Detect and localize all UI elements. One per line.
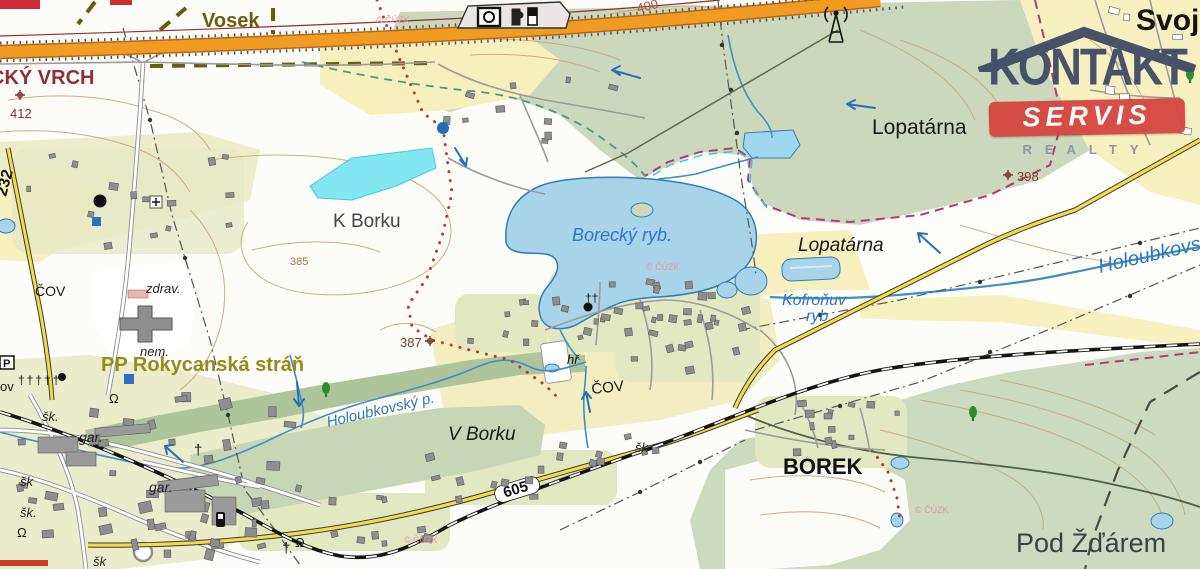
pond-left-edge <box>0 219 15 233</box>
building-footprint <box>331 531 339 538</box>
building-footprint <box>261 500 269 509</box>
borek-pond-2 <box>891 513 903 527</box>
building-footprint <box>147 519 154 530</box>
building-footprint <box>1120 94 1130 103</box>
building-footprint <box>357 537 365 544</box>
map-label-copyright-2: © ČÚZK <box>646 262 680 272</box>
building-footprint <box>530 494 538 499</box>
map-label-area-lopatarna-north: Lopatárna <box>872 116 967 139</box>
building-footprint <box>631 356 638 361</box>
map-label-pond-borecky: Borecký ryb. <box>572 225 672 245</box>
building-footprint <box>738 323 747 332</box>
scale-bar-fragment <box>0 560 48 566</box>
map-label-label-ov-cut: ov <box>0 379 14 394</box>
building-footprint <box>685 366 695 375</box>
map-label-cross-symbol-a: † <box>194 442 202 459</box>
building-footprint <box>797 400 806 407</box>
building-footprint <box>685 281 693 289</box>
building-footprint <box>329 497 336 505</box>
building-footprint <box>138 501 153 514</box>
map-label-area-vosek: Vosek <box>202 10 260 32</box>
map-label-area-pod-zdarem: Pod Žďárem <box>1016 527 1166 558</box>
building-footprint <box>208 157 216 166</box>
map-label-pond-kofronuv-line2: ryb <box>806 308 828 325</box>
building-footprint <box>561 305 569 312</box>
building-footprint <box>226 192 234 197</box>
spring-symbol <box>437 122 449 134</box>
building-footprint <box>559 442 567 449</box>
building-footprint <box>1180 127 1192 135</box>
map-label-label-nem: nem. <box>140 344 169 359</box>
map-label-omega-symbol-3: Ω <box>295 535 305 550</box>
building-footprint <box>417 526 426 533</box>
map-label-cross-symbol-b: † <box>282 540 290 557</box>
map-label-elev-398: 398 <box>1017 169 1039 184</box>
building-footprint <box>625 328 633 336</box>
building-footprint <box>824 413 832 419</box>
map-label-label-hriste: hř <box>567 352 580 367</box>
map-label-label-cov-village: ČOV <box>591 378 625 398</box>
school-building-1 <box>38 437 78 453</box>
building-footprint <box>150 233 158 238</box>
chapel-symbol <box>150 196 162 208</box>
building-footprint <box>614 307 623 314</box>
map-label-label-garaze-1: gar. <box>79 429 103 445</box>
building-footprint <box>636 303 643 309</box>
building-footprint <box>462 118 468 123</box>
building-footprint <box>524 301 529 305</box>
map-label-label-skola-5: šk <box>635 440 650 455</box>
building-footprint <box>597 459 605 465</box>
map-label-label-skola-2: šk <box>20 474 35 489</box>
building-footprint <box>72 161 79 168</box>
map-screenshot: SvojVosekCKÝ VRCH412232K BorkuBorecký ry… <box>0 0 1200 569</box>
map-label-label-skola-3: šk. <box>20 505 37 520</box>
clinic-building <box>128 290 148 298</box>
map-label-label-zdrav: zdrav. <box>145 281 180 296</box>
map-label-field-k-borku: K Borku <box>333 211 401 232</box>
map-label-omega-symbol-2: Ω <box>17 525 27 540</box>
building-footprint <box>1105 86 1115 95</box>
building-footprint <box>252 519 256 527</box>
map-label-elev-387: 387 <box>400 335 422 350</box>
building-footprint <box>382 540 388 546</box>
building-footprint <box>531 320 538 327</box>
map-label-copyright-1: © ČÚZK <box>376 15 410 25</box>
building-footprint <box>708 292 715 298</box>
map-label-copyright-3: © ČÚZK <box>915 505 949 515</box>
building-footprint <box>668 315 677 323</box>
map-label-church-cross-symbol: †† <box>585 291 598 305</box>
building-footprint <box>552 297 560 306</box>
pond-west <box>735 267 767 295</box>
building-footprint <box>684 319 692 325</box>
map-label-label-garaze-2: gar. <box>149 479 173 495</box>
pond-bottom-right <box>1151 513 1173 529</box>
pond-island <box>631 203 653 217</box>
building-footprint <box>678 345 686 352</box>
picnic-icon <box>478 8 500 26</box>
building-footprint <box>131 192 137 199</box>
building-footprint <box>895 411 899 416</box>
building-footprint <box>166 226 172 232</box>
building-footprint <box>89 408 98 417</box>
building-footprint <box>226 223 233 228</box>
map-label-area-lopatarna-valley: Lopatárna <box>798 235 884 256</box>
map-label-copyright-4: © ČÚZK <box>404 535 438 545</box>
building-footprint <box>53 503 64 511</box>
monument-symbol <box>94 195 107 208</box>
map-label-hill-vrch: CKÝ VRCH <box>0 65 94 89</box>
building-footprint <box>496 105 505 112</box>
building-footprint <box>98 507 107 517</box>
building-footprint <box>601 314 611 321</box>
building-footprint <box>849 435 854 440</box>
building-footprint <box>164 550 171 558</box>
building-footprint <box>697 314 703 323</box>
building-footprint <box>222 154 229 159</box>
building-footprint <box>1123 14 1129 21</box>
map-label-label-cov-west: ČOV <box>35 283 66 299</box>
sheet-mark-topleft <box>0 0 40 9</box>
building-footprint <box>583 327 592 336</box>
building-footprint <box>18 439 25 445</box>
building-footprint <box>825 437 833 445</box>
building-footprint <box>595 451 602 458</box>
building-footprint <box>284 421 296 428</box>
map-label-elev-412: 412 <box>10 106 32 121</box>
building-footprint <box>49 153 56 158</box>
building-footprint <box>88 211 95 218</box>
map-label-reserve-pp-rokycanska-stran: PP Rokycanská stráň <box>101 354 304 376</box>
building-footprint <box>589 459 597 467</box>
building-footprint <box>42 530 54 538</box>
building-footprint <box>805 410 814 417</box>
building-footprint <box>557 453 564 461</box>
building-footprint <box>210 539 220 548</box>
map-label-omega-symbol-1: Ω <box>109 391 119 406</box>
building-footprint <box>698 292 707 301</box>
building-footprint <box>652 447 659 453</box>
building-footprint <box>223 439 232 451</box>
pond-small <box>717 282 737 298</box>
info-square-1 <box>92 217 101 226</box>
building-footprint <box>123 418 134 425</box>
building-footprint <box>867 401 875 408</box>
building-footprint <box>267 461 280 470</box>
building-footprint <box>372 531 379 539</box>
building-footprint <box>505 312 510 317</box>
map-label-town-svojkovice: Svoj <box>1136 4 1199 37</box>
building-footprint <box>683 309 691 315</box>
building-footprint <box>468 338 474 343</box>
map-label-pond-kofronuv-line1: Kofroňuv <box>782 292 847 309</box>
rest-area-symbol <box>458 2 570 28</box>
building-footprint <box>594 319 599 325</box>
map-label-label-skola-4: šk <box>93 554 108 569</box>
map-label-cemetery-cross-row: ††††† <box>18 373 61 387</box>
building-footprint <box>510 82 516 89</box>
building-footprint <box>27 186 31 192</box>
building-footprint <box>110 471 116 476</box>
building-footprint <box>657 314 663 320</box>
building-footprint <box>710 315 716 322</box>
building-footprint <box>624 433 631 440</box>
borek-pond-1 <box>891 457 909 469</box>
building-footprint <box>382 496 388 502</box>
topo-map-canvas: SvojVosekCKÝ VRCH412232K BorkuBorecký ry… <box>0 0 1200 569</box>
building-footprint <box>455 495 462 502</box>
building-footprint <box>685 341 694 349</box>
building-footprint <box>705 322 713 330</box>
map-label-elev-385: 385 <box>290 256 308 268</box>
building-footprint <box>609 282 615 287</box>
school-building-2 <box>66 452 96 466</box>
building-footprint <box>566 77 571 83</box>
map-label-parking-symbol-label: P <box>3 358 10 370</box>
map-label-area-v-borku: V Borku <box>448 424 516 445</box>
building-footprint <box>545 132 552 140</box>
building-footprint <box>544 118 552 124</box>
kofronuv-pond <box>781 256 840 281</box>
building-footprint <box>809 422 814 430</box>
building-footprint <box>28 498 37 504</box>
building-footprint <box>167 200 176 206</box>
building-footprint <box>523 339 529 346</box>
map-label-village-borek: BOREK <box>783 454 863 479</box>
building-footprint <box>538 466 544 474</box>
building-footprint <box>204 455 213 463</box>
building-footprint <box>109 182 119 190</box>
map-label-label-skola-1: šk. <box>42 409 59 424</box>
building-footprint <box>578 335 584 340</box>
building-footprint <box>104 242 113 249</box>
building-footprint <box>256 477 266 485</box>
building-footprint <box>828 426 835 432</box>
building-footprint <box>269 407 277 417</box>
sheet-mark-top2 <box>110 0 132 5</box>
building-footprint <box>245 528 257 538</box>
